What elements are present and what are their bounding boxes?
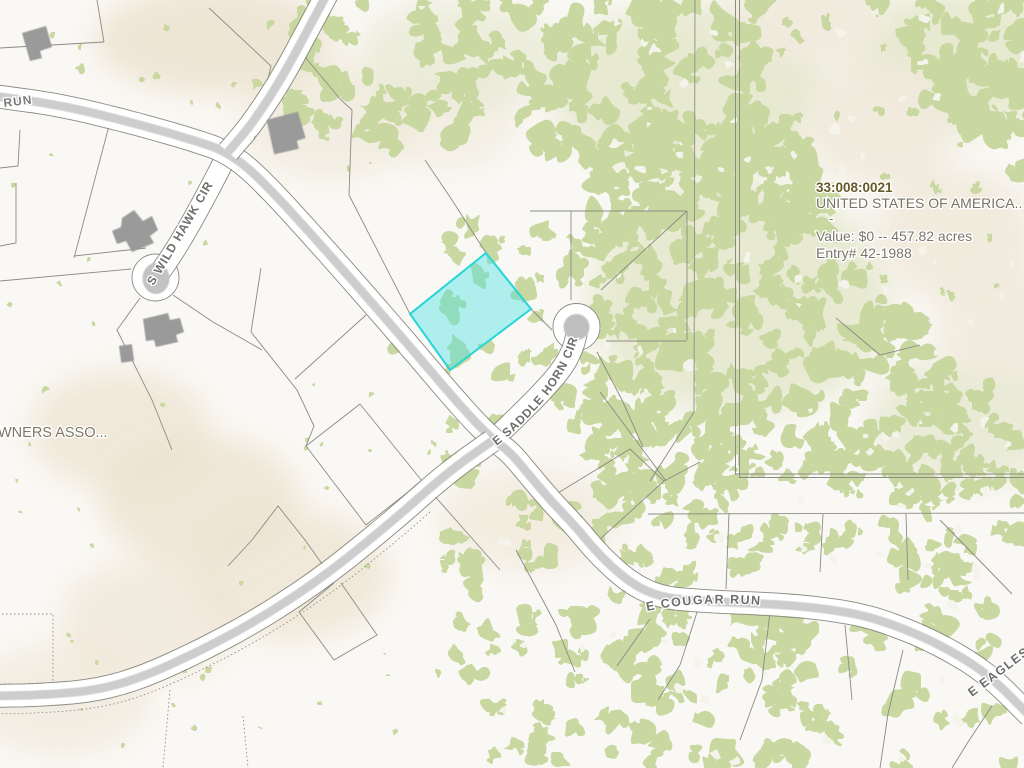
svg-text:WNERS ASSO...: WNERS ASSO...	[0, 425, 108, 441]
svg-text:-: -	[829, 211, 833, 226]
svg-text:UNITED STATES OF AMERICA..: UNITED STATES OF AMERICA..	[816, 195, 1022, 211]
svg-text:Entry# 42-1988: Entry# 42-1988	[816, 245, 912, 261]
svg-text:33:008:0021: 33:008:0021	[816, 180, 893, 195]
svg-text:Value: $0 -- 457.82 acres: Value: $0 -- 457.82 acres	[816, 228, 972, 244]
